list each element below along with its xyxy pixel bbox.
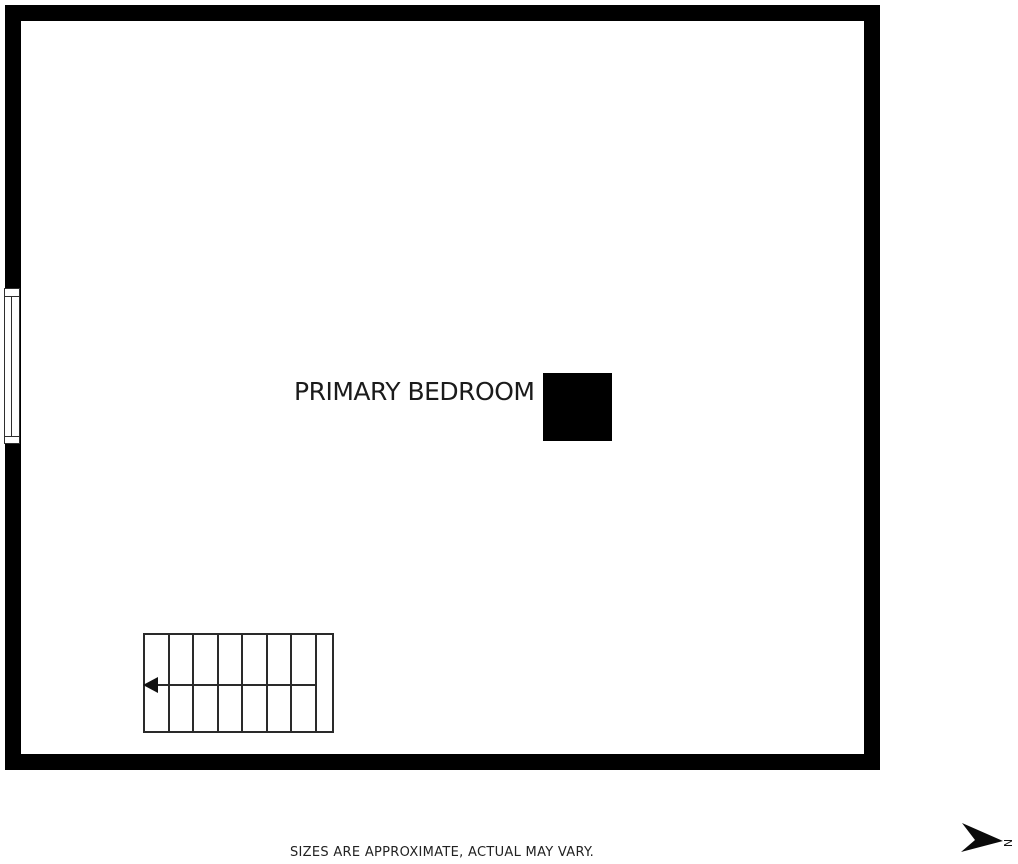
window-glass-line	[11, 297, 12, 436]
stair-tread-divider	[192, 635, 194, 731]
window-cap-bottom	[5, 436, 19, 437]
window-symbol	[4, 288, 20, 444]
stair-tread-divider	[168, 635, 170, 731]
stair-tread-divider	[290, 635, 292, 731]
stair-tread-divider	[315, 635, 317, 731]
staircase	[143, 633, 334, 733]
stair-tread-divider	[266, 635, 268, 731]
floorplan-canvas: PRIMARY BEDROOM SIZES ARE APPROXIMATE, A…	[0, 0, 1018, 864]
stair-tread-divider	[241, 635, 243, 731]
north-arrow-label: N	[1001, 839, 1014, 847]
chimney-block	[543, 373, 612, 441]
disclaimer-text: SIZES ARE APPROXIMATE, ACTUAL MAY VARY.	[290, 845, 594, 860]
room-label: PRIMARY BEDROOM	[294, 377, 534, 406]
stair-tread-divider	[217, 635, 219, 731]
north-arrow-icon: N	[953, 813, 1017, 859]
window-cap-top	[5, 296, 19, 297]
north-arrow: N	[953, 813, 1017, 859]
stair-direction-arrow-icon	[143, 677, 158, 693]
